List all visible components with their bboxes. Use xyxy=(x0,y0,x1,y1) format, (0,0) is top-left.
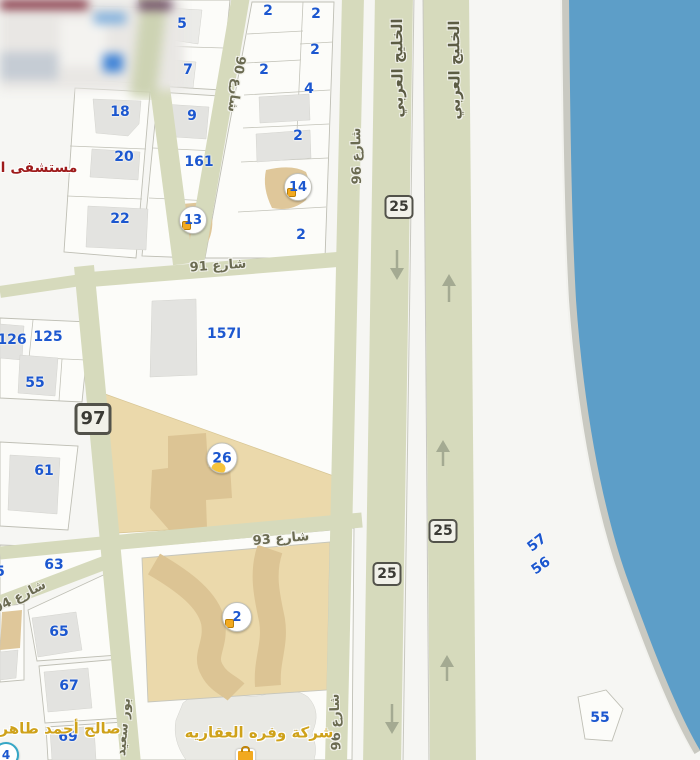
poi-marker-2[interactable]: 2 xyxy=(222,602,252,632)
route-badge-97: 97 xyxy=(75,403,112,435)
parcel-number: 18 xyxy=(110,105,129,119)
hospital-label: مستشفى ال xyxy=(0,161,77,175)
marker-number: 26 xyxy=(212,451,231,465)
parcel-number: 55 xyxy=(25,376,44,390)
parcel-number: 157ا xyxy=(207,327,241,341)
parcel-number: 125 xyxy=(33,330,62,344)
parcel-number: 20 xyxy=(114,150,133,164)
parcel-number: 22 xyxy=(110,212,129,226)
person-poi-label: صالح أحمد طاهر xyxy=(0,722,121,737)
route-badge-25: 25 xyxy=(429,519,458,543)
parcel-number: 2 xyxy=(310,43,320,57)
parcel-number: 9 xyxy=(187,109,197,123)
khaleej-al-arabi-label-left: الخليج العربي xyxy=(390,18,406,117)
street-96-label-bottom: شارع 96 xyxy=(329,693,344,750)
shopping-bag-icon[interactable] xyxy=(236,749,255,760)
parcel-number: 5 xyxy=(177,17,187,31)
parcel-number: 5 xyxy=(0,565,5,579)
street-96-label-top: شارع 96 xyxy=(350,128,364,185)
parcel-number: 2 xyxy=(296,228,306,242)
parcel-number: 65 xyxy=(49,625,68,639)
map-geometry xyxy=(0,0,700,760)
parcel-number: 4 xyxy=(304,82,314,96)
blurred-region xyxy=(0,0,192,100)
parcel-number: 2 xyxy=(293,129,303,143)
poi-marker-14[interactable]: 14 xyxy=(284,173,312,201)
khaleej-al-arabi-label-right: الخليج العربي xyxy=(447,20,463,119)
poi-marker-26[interactable]: 26 xyxy=(207,443,238,474)
poi-marker-13[interactable]: 13 xyxy=(179,206,207,234)
parcel-number: 2 xyxy=(311,7,321,21)
marker-number: 13 xyxy=(184,214,202,227)
parcel-number: 2 xyxy=(263,4,273,18)
marker-number: 2 xyxy=(232,611,241,624)
marker-number: 4 xyxy=(2,749,10,760)
route-badge-25: 25 xyxy=(373,562,402,586)
parcel-number: 63 xyxy=(44,558,63,572)
parcel-number: 126 xyxy=(0,333,27,347)
parcel-number: 161 xyxy=(184,155,213,169)
parcel-number: 61 xyxy=(34,464,53,478)
map-canvas[interactable]: 5 7 2 2 2 2 4 18 9 20 161 2 22 2 126 125… xyxy=(0,0,700,760)
parcel-number: 7 xyxy=(183,63,193,77)
parcel-number: 55 xyxy=(590,711,609,725)
parcel-number: 67 xyxy=(59,679,78,693)
street-91-label: شارع 91 xyxy=(189,258,246,275)
company-poi-label: شركة وفره العقاريه xyxy=(185,726,334,741)
route-badge-25: 25 xyxy=(385,195,414,219)
marker-number: 14 xyxy=(289,181,307,194)
parcel-number: 2 xyxy=(259,63,269,77)
